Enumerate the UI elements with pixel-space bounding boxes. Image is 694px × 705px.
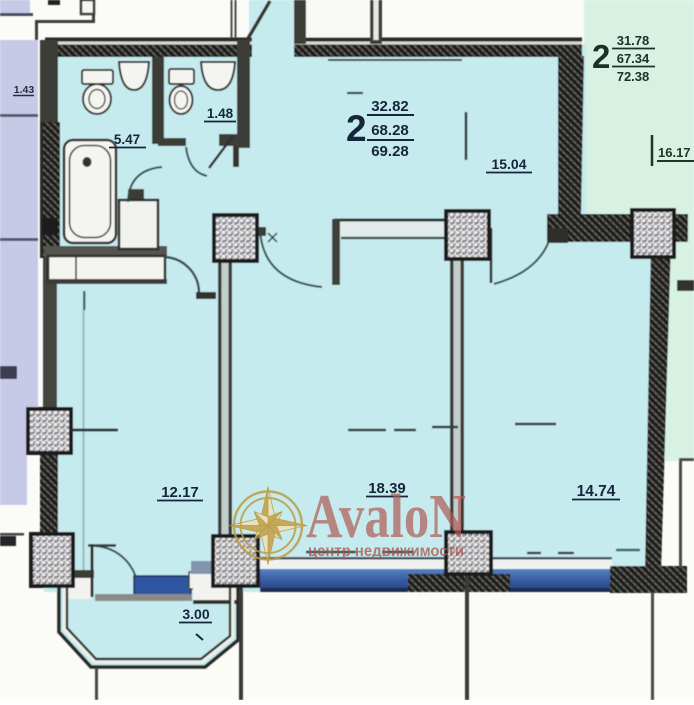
svg-text:5.47: 5.47: [114, 132, 140, 147]
svg-text:3.00: 3.00: [182, 606, 209, 622]
svg-text:14.74: 14.74: [577, 483, 616, 500]
svg-text:центр недвижимости: центр недвижимости: [308, 543, 464, 560]
svg-text:31.78: 31.78: [617, 33, 650, 48]
svg-text:67.34: 67.34: [617, 51, 650, 66]
svg-text:AvaloN: AvaloN: [306, 483, 466, 551]
svg-text:72.38: 72.38: [617, 69, 650, 84]
svg-text:12.17: 12.17: [161, 484, 199, 501]
svg-text:32.82: 32.82: [371, 98, 409, 115]
svg-text:68.28: 68.28: [371, 122, 409, 139]
svg-text:2: 2: [592, 38, 610, 75]
svg-text:1.43: 1.43: [14, 84, 35, 96]
svg-text:69.28: 69.28: [371, 143, 409, 160]
svg-text:1.48: 1.48: [207, 106, 234, 121]
svg-text:16.17: 16.17: [658, 145, 691, 160]
svg-text:2: 2: [346, 108, 367, 149]
svg-text:15.04: 15.04: [491, 156, 526, 172]
